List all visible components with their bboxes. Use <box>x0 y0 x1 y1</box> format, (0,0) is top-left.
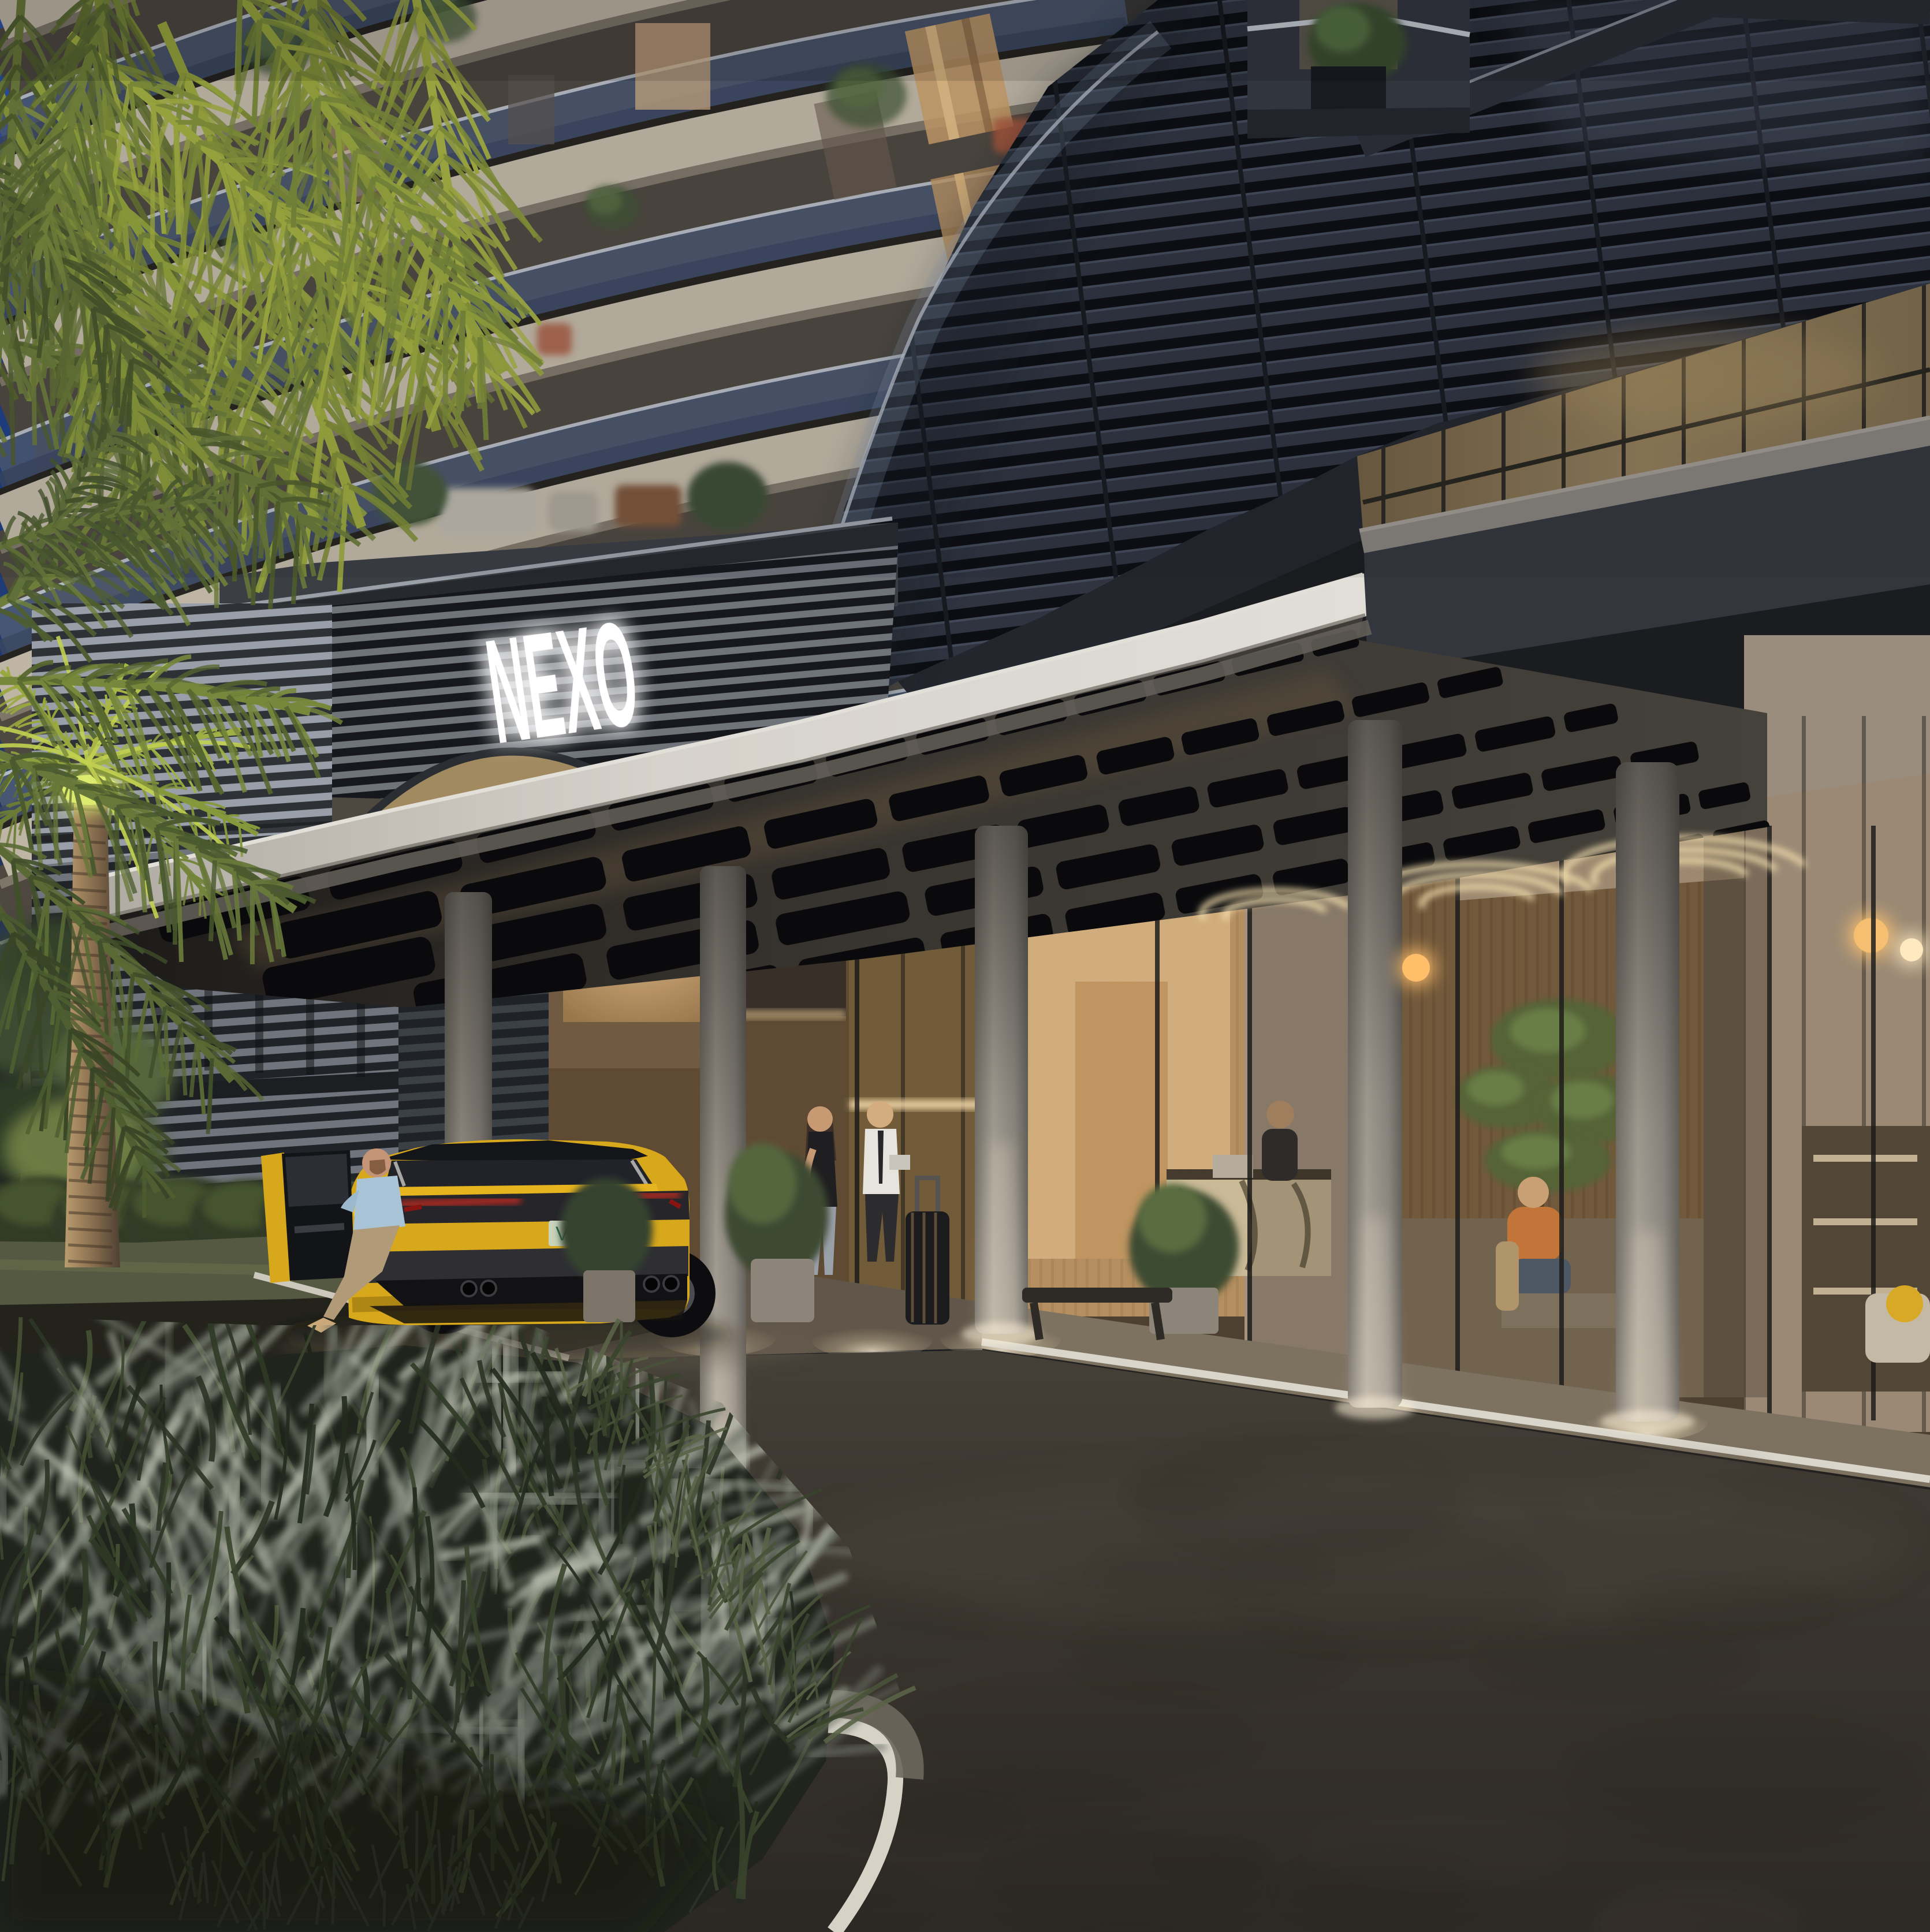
svg-text:NEXO: NEXO <box>478 589 647 775</box>
